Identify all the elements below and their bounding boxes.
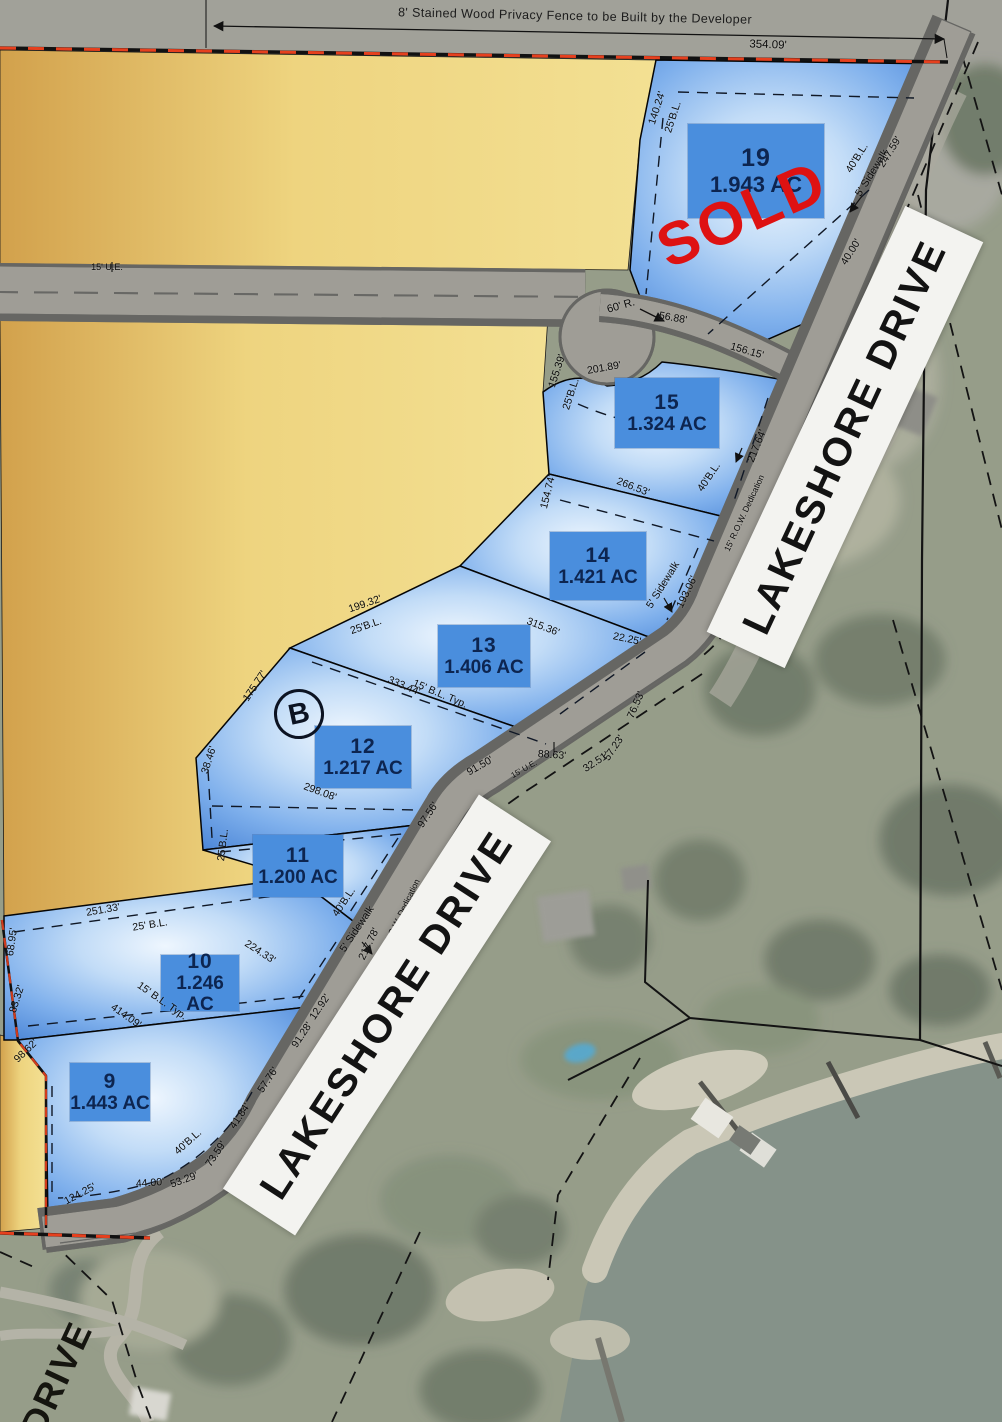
site-plan-map: 191.943 AC151.324 AC141.421 AC131.406 AC… xyxy=(0,0,1002,1422)
site-plan-drawing xyxy=(0,0,1002,1422)
